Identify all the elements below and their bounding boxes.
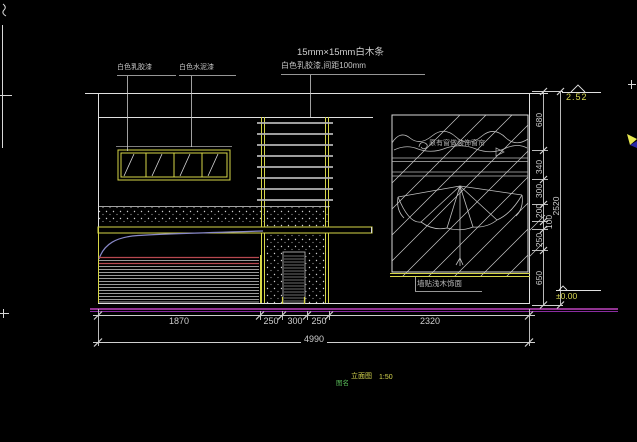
dim-right-3: 300: [535, 184, 544, 198]
glass-hatch: [298, 107, 637, 277]
dim-bottom-3: 300: [287, 317, 302, 326]
elevation-value-bottom: ±0.00: [556, 292, 577, 301]
dim-bottom-1: 1870: [169, 317, 189, 326]
note-wood-strip-paint: 白色乳胶漆,间距100mm: [281, 62, 366, 70]
cursor-arrow-icon: [627, 134, 637, 148]
louver-door: [283, 252, 306, 304]
dim-right-1: 680: [535, 113, 544, 127]
leader-squiggle-icon: [419, 143, 427, 149]
panel-bottom-lines: [390, 274, 530, 277]
title-scale: 1:50: [379, 374, 393, 381]
shutter-strips: [99, 255, 261, 303]
title-tag: 图名: [336, 381, 349, 388]
curtain-window-panel: [298, 107, 637, 277]
note-paint-left: 白色乳胶漆: [117, 64, 152, 71]
title-name: 立面图: [351, 373, 372, 380]
floor-lines: [90, 309, 618, 312]
note-wall-finish: 墙贴浅木饰面: [417, 280, 462, 288]
elevation-value-top: 2.52: [566, 93, 588, 102]
dim-right-2: 340: [535, 160, 544, 174]
dim-bottom-2: 250: [263, 317, 278, 326]
dim-right-total: 2520: [552, 197, 561, 216]
note-paint-right: 白色水泥漆: [179, 64, 214, 71]
note-window: 原有窗做装饰窗帘: [429, 140, 485, 147]
wood-strips: [257, 123, 333, 200]
elevation-symbol-bottom: [556, 286, 601, 291]
dim-right-6: 250: [535, 233, 544, 247]
window-pane-swing-lines: [124, 154, 218, 176]
window: [116, 147, 232, 181]
note-wood-strip-size: 15mm×15mm白木条: [297, 48, 384, 58]
counter-bar: [98, 227, 372, 303]
umbrella-drape: [398, 186, 523, 266]
dim-right-7: 650: [535, 271, 544, 285]
dim-right-5: 100: [545, 215, 554, 229]
dim-right-4: 200: [535, 204, 544, 218]
corner-glyph: [3, 4, 6, 16]
dim-bottom-total: 4990: [301, 335, 327, 344]
dim-bottom-4: 250: [311, 317, 326, 326]
cad-drawing-canvas[interactable]: 白色乳胶漆 白色水泥漆 15mm×15mm白木条 白色乳胶漆,间距100mm 原…: [0, 0, 637, 442]
drape-curve: [99, 231, 263, 259]
dim-bottom-5: 2320: [420, 317, 440, 326]
